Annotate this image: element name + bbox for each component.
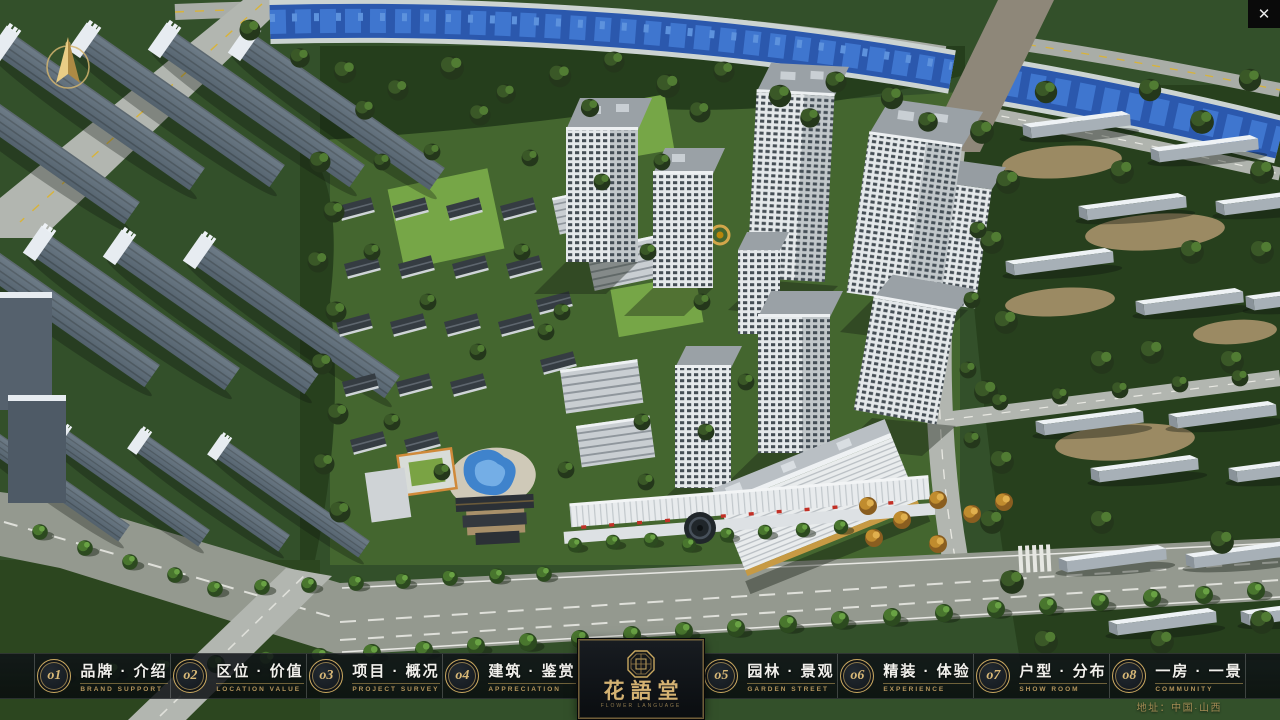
nav-item-garden[interactable]: o5 园林 · 景观GARDEN STREET [702,654,837,698]
nav-item-views[interactable]: o8 一房 · 一景COMMUNITY [1109,654,1246,698]
masterplan-3d-viewport[interactable] [0,0,1280,720]
nav-item-location[interactable]: o2 区位 · 价值LOCATION VALUE [170,654,306,698]
nav-number-badge: o2 [173,659,207,693]
nav-number-badge: o3 [309,659,343,693]
project-logo[interactable]: 花語堂 FLOWER LANGUAGE [578,639,704,719]
nav-number-badge: o8 [1112,659,1146,693]
close-button[interactable]: ✕ [1248,0,1280,28]
nav-number-badge: o7 [976,659,1010,693]
nav-item-interior[interactable]: o6 精装 · 体验EXPERIENCE [837,654,973,698]
logo-subtitle: FLOWER LANGUAGE [601,704,682,709]
nav-group-left: o1 品牌 · 介绍BRAND SUPPORT o2 区位 · 价值LOCATI… [0,654,578,698]
nav-number-badge: o5 [704,659,738,693]
nav-number-badge: o1 [37,659,71,693]
nav-number-badge: o4 [445,659,479,693]
logo-seal-icon [626,649,656,679]
compass-icon [42,30,94,97]
nav-number-badge: o6 [840,659,874,693]
nav-item-architecture[interactable]: o4 建筑 · 鉴赏APPRECIATION [442,654,578,698]
nav-item-project[interactable]: o3 项目 · 概况PROJECT SURVEY [306,654,442,698]
nav-item-floorplan[interactable]: o7 户型 · 分布SHOW ROOM [973,654,1109,698]
presentation-stage: ✕ o1 品牌 · 介绍BRAND SUPPORT o2 区位 · 价值LOCA… [0,0,1280,720]
nav-item-brand[interactable]: o1 品牌 · 介绍BRAND SUPPORT [34,654,170,698]
project-address: 地址：中国·山西 [1137,699,1222,714]
logo-name: 花語堂 [598,681,685,702]
nav-group-right: o5 园林 · 景观GARDEN STREET o6 精装 · 体验EXPERI… [702,654,1280,698]
